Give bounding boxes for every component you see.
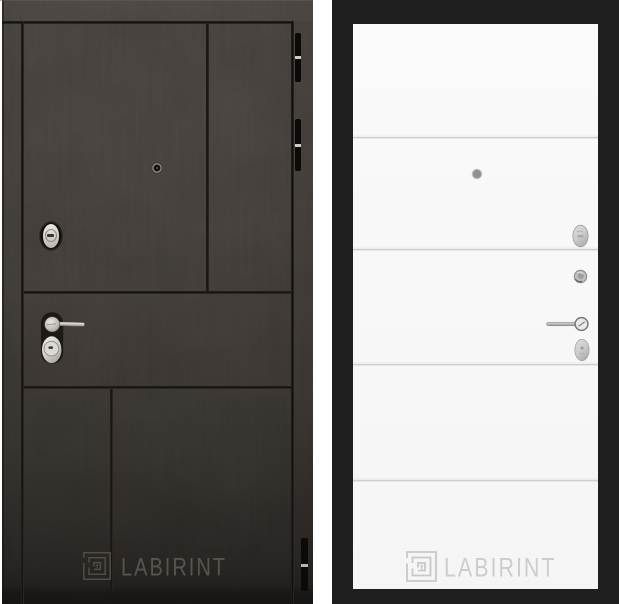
svg-text:LABIRINT: LABIRINT [121, 554, 227, 582]
svg-text:LABIRINT: LABIRINT [444, 553, 557, 583]
